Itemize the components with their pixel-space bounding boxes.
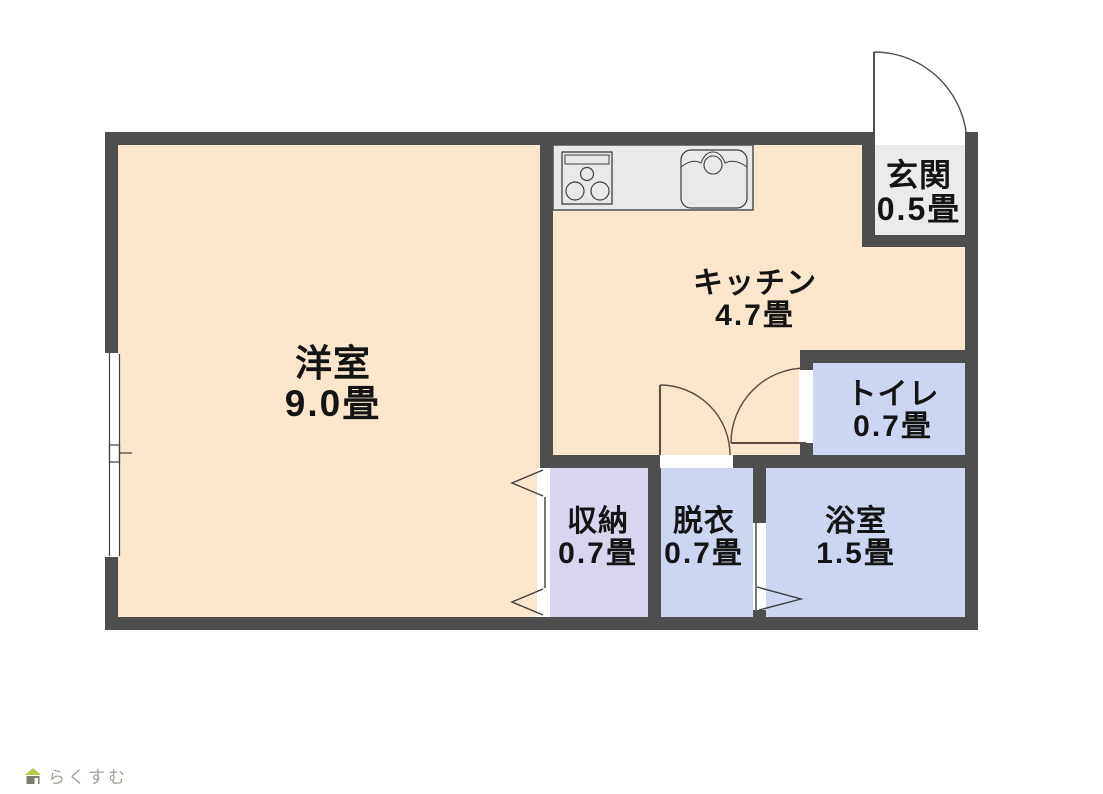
room-name: 脱衣 — [664, 506, 744, 538]
dressing-door-opening — [660, 455, 733, 468]
wall-entrance-bottom — [862, 235, 978, 247]
label-entrance: 玄関 0.5畳 — [877, 158, 962, 226]
room-name: キッチン — [693, 268, 817, 300]
label-closet: 収納 0.7畳 — [558, 506, 638, 570]
room-size: 0.7畳 — [664, 538, 744, 570]
room-size: 4.7畳 — [693, 300, 817, 332]
label-toilet: トイレ 0.7畳 — [847, 379, 940, 443]
room-size: 9.0畳 — [285, 384, 381, 424]
wall-right — [965, 132, 978, 630]
label-living-room: 洋室 9.0畳 — [285, 344, 381, 423]
room-size: 0.5畳 — [877, 192, 962, 226]
wall-kitchen-lowerrow — [540, 455, 965, 468]
wall-closet-dressing — [648, 468, 661, 617]
room-size: 0.7畳 — [558, 538, 638, 570]
window-opening — [104, 353, 120, 557]
room-name: 浴室 — [816, 506, 896, 538]
room-size: 1.5畳 — [816, 538, 896, 570]
room-name: トイレ — [847, 379, 940, 411]
entrance-door-icon — [874, 52, 967, 145]
room-name: 収納 — [558, 506, 638, 538]
room-name: 洋室 — [285, 344, 381, 384]
wall-top — [105, 132, 862, 145]
wall-livingroom-kitchen — [540, 145, 553, 468]
closet-door-opening — [537, 468, 550, 617]
wall-bottom — [105, 617, 978, 630]
house-icon — [24, 767, 42, 785]
branding-logo: らくすむ — [24, 763, 128, 788]
floorplan: 洋室 9.0畳 キッチン 4.7畳 玄関 0.5畳 トイレ 0.7畳 収納 0.… — [0, 0, 1103, 794]
wall-toilet-top — [800, 350, 965, 363]
bath-door-opening — [753, 523, 766, 610]
logo-text: らくすむ — [48, 763, 128, 788]
room-name: 玄関 — [877, 158, 962, 192]
label-dressing-room: 脱衣 0.7畳 — [664, 506, 744, 570]
label-kitchen: キッチン 4.7畳 — [693, 268, 817, 332]
wall-entrance-left — [862, 132, 875, 247]
toilet-door-opening — [799, 370, 814, 443]
label-bathroom: 浴室 1.5畳 — [816, 506, 896, 570]
room-size: 0.7畳 — [847, 411, 940, 443]
